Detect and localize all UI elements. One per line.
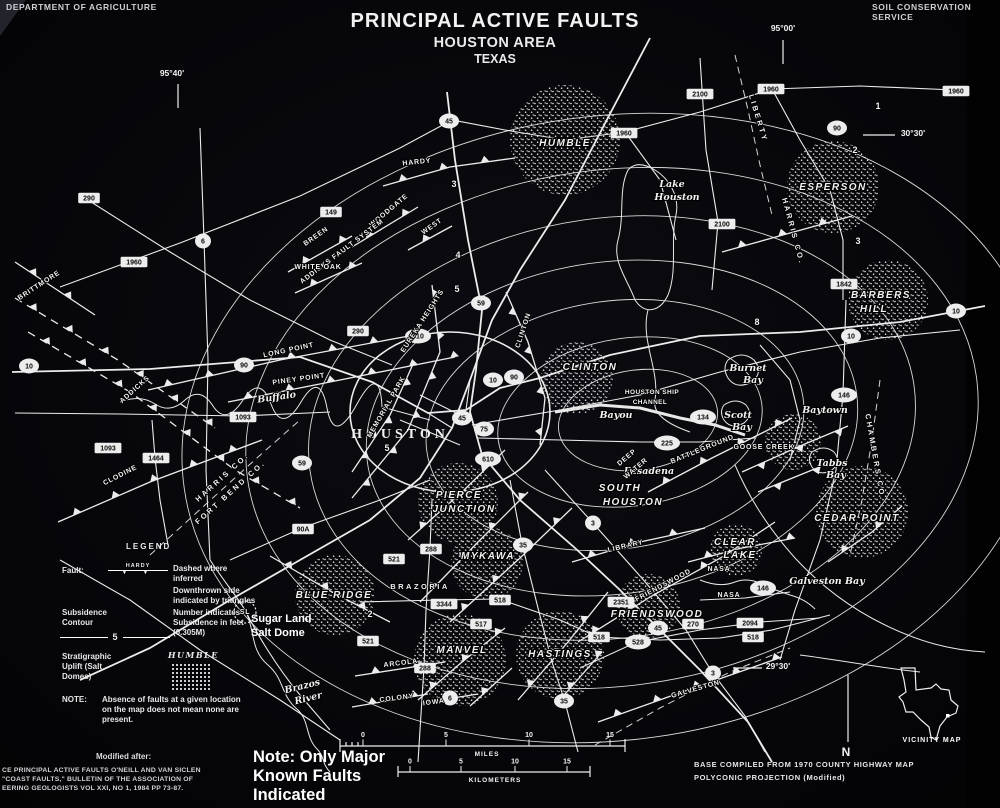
map-label-mykawa: MYKAWA <box>461 551 515 562</box>
map-label-29-30: 29°30' <box>766 661 790 671</box>
subsidence-symbol: 5 <box>60 632 170 643</box>
subsidence-line-left <box>60 637 108 638</box>
km-tick-label-5: 5 <box>459 759 463 766</box>
miles-tick-label-10: 10 <box>525 732 533 739</box>
shield-number-10: 10 <box>25 364 33 371</box>
shield-number-288: 288 <box>419 666 431 673</box>
fault-symbol-name: HARDY <box>108 563 168 570</box>
shield-number-146: 146 <box>757 586 769 593</box>
scan-edge-strip <box>966 0 1000 808</box>
shield-number-134: 134 <box>697 415 709 422</box>
legend-strat-example: HUMBLE <box>168 650 219 660</box>
shield-number-45: 45 <box>458 416 466 423</box>
map-label-manvel: MANVEL <box>436 645 487 656</box>
map-label-nasa: NASA <box>717 592 740 599</box>
contour-number-5: 5 <box>454 284 459 294</box>
shield-number-518: 518 <box>593 635 605 642</box>
header-service: SOIL CONSERVATION SERVICE <box>872 2 1000 22</box>
shield-number-1960: 1960 <box>948 89 964 96</box>
map-label-houston: HOUSTON <box>351 427 449 442</box>
map-label-blue-ridge: BLUE RIDGE <box>296 590 373 601</box>
map-label-bayou: Bayou <box>599 410 633 421</box>
legend-strat-label: Stratigraphic Uplift (Salt Domes) <box>62 652 132 682</box>
shield-number-3344: 3344 <box>436 602 452 609</box>
map-label-30-30: 30°30' <box>901 128 925 138</box>
shield-number-521: 521 <box>388 557 400 564</box>
map-label-south: SOUTH <box>599 483 642 494</box>
scale-miles-label: MILES <box>475 751 500 758</box>
base-credit-block: BASE COMPILED FROM 1970 COUNTY HIGHWAY M… <box>694 759 914 785</box>
shield-number-1960: 1960 <box>763 87 779 94</box>
sugar-land-annotation: Sugar Land Salt Dome <box>251 613 323 641</box>
shield-number-10: 10 <box>489 378 497 385</box>
shield-number-6: 6 <box>201 239 205 246</box>
map-label-95-00: 95°00' <box>771 23 795 33</box>
legend-subsidence-desc: Number indicates Subsidence in feet (0.3… <box>173 608 261 638</box>
salt-dome-clinton <box>541 342 613 414</box>
miles-tick-label-0: 0 <box>361 732 365 739</box>
legend-subsidence-label: Subsidence Contour <box>62 608 120 628</box>
legend-fault-desc2: Downthrown side indicated by triangles <box>173 586 261 606</box>
legend-note-text: Absence of faults at a given location on… <box>102 695 252 725</box>
shield-number-75: 75 <box>480 427 488 434</box>
shield-number-90: 90 <box>510 375 518 382</box>
map-label-bay: Bay <box>731 422 753 433</box>
legend-note-label: NOTE: <box>62 695 87 705</box>
shield-number-288: 288 <box>425 547 437 554</box>
shield-number-1093: 1093 <box>235 415 251 422</box>
miles-tick-label-15: 15 <box>606 732 614 739</box>
shield-number-521: 521 <box>362 639 374 646</box>
shield-number-610: 610 <box>482 457 494 464</box>
contour-number-5: 5 <box>384 443 389 453</box>
shield-number-45: 45 <box>445 119 453 126</box>
shield-number-2094: 2094 <box>742 621 758 628</box>
map-label-pierce: PIERCE <box>436 490 482 501</box>
map-label-friendswood: FRIENDSWOOD <box>611 609 704 620</box>
shield-number-45: 45 <box>654 626 662 633</box>
map-label-clear: CLEAR <box>714 537 756 548</box>
miles-tick-label-5: 5 <box>444 732 448 739</box>
map-subtitle-state: TEXAS <box>330 52 660 68</box>
legend-fault-label: Fault: <box>62 566 84 576</box>
header-department: DEPARTMENT OF AGRICULTURE <box>6 2 157 12</box>
shield-number-528: 528 <box>632 640 644 647</box>
modified-after-label: Modified after: <box>96 752 151 761</box>
fault-symbol: HARDY ▼▼ <box>108 563 168 576</box>
map-label-hill: HILL <box>860 304 888 315</box>
base-credit-line-1: BASE COMPILED FROM 1970 COUNTY HIGHWAY M… <box>694 759 914 772</box>
citation-line-3: EERING GEOLOGISTS VOL XXI, NO 1, 1984 PP… <box>2 784 201 793</box>
salt-dome-goose-creek <box>765 414 821 470</box>
legend-fault-desc1: Dashed where inferred <box>173 564 253 584</box>
map-label-hastings: HASTINGS <box>528 649 592 660</box>
map-label-95-40: 95°40' <box>160 68 184 78</box>
contour-number-3: 3 <box>855 236 860 246</box>
shield-number-59: 59 <box>477 301 485 308</box>
houston-location-dot <box>946 714 950 718</box>
citation-line-1: CE PRINCIPAL ACTIVE FAULTS O'NEILL AND V… <box>2 766 201 775</box>
shield-number-1960: 1960 <box>126 260 142 267</box>
km-tick-label-15: 15 <box>563 759 571 766</box>
shield-number-517: 517 <box>475 622 487 629</box>
shield-number-1464: 1464 <box>148 456 164 463</box>
map-label-junction: JUNCTION <box>432 504 495 515</box>
stipple-sample <box>171 663 211 690</box>
shield-number-1960: 1960 <box>616 131 632 138</box>
map-label-baytown: Baytown <box>801 405 848 416</box>
shield-number-3: 3 <box>591 521 595 528</box>
subsidence-line-right <box>123 637 171 638</box>
contour-number-3: 3 <box>451 179 456 189</box>
map-label-brazoria: BRAZORIA <box>390 582 450 591</box>
fault-symbol-line: ▼▼ <box>108 570 168 576</box>
citation-line-2: "COAST FAULTS," BULLETIN OF THE ASSOCIAT… <box>2 775 201 784</box>
map-label-houston: Houston <box>653 192 699 203</box>
map-label-barbers: BARBERS <box>851 290 911 301</box>
contour-number-8: 8 <box>754 317 759 327</box>
shield-number-90a: 90A <box>297 527 310 534</box>
shield-number-290: 290 <box>83 196 95 203</box>
map-title: PRINCIPAL ACTIVE FAULTS <box>330 9 660 34</box>
major-faults-note: Note: Only Major Known Faults Indicated <box>253 748 405 805</box>
shield-number-90: 90 <box>833 126 841 133</box>
map-label-lake: LAKE <box>723 550 756 561</box>
shield-number-2100: 2100 <box>714 222 730 229</box>
shield-number-90: 90 <box>240 363 248 370</box>
shield-number-1842: 1842 <box>836 282 852 289</box>
map-label-houston-ship: HOUSTON SHIP <box>625 389 679 396</box>
shield-number-518: 518 <box>747 635 759 642</box>
shield-number-10: 10 <box>952 309 960 316</box>
legend-title: LEGEND <box>126 542 171 552</box>
map-title-block: PRINCIPAL ACTIVE FAULTS HOUSTON AREA TEX… <box>330 9 660 68</box>
map-label-clinton: CLINTON <box>563 362 618 373</box>
map-label-white-oak: WHITE OAK <box>294 264 341 271</box>
shield-number-59: 59 <box>298 461 306 468</box>
shield-number-518: 518 <box>494 598 506 605</box>
shield-number-146: 146 <box>838 393 850 400</box>
shield-number-10: 10 <box>847 334 855 341</box>
citation-block: CE PRINCIPAL ACTIVE FAULTS O'NEILL AND V… <box>2 766 201 794</box>
shield-number-149: 149 <box>325 210 337 217</box>
map-label-humble: HUMBLE <box>539 138 591 149</box>
map-label-nasa: NASA <box>707 566 730 573</box>
map-subtitle-area: HOUSTON AREA <box>330 34 660 52</box>
vicinity-map-label: VICINITY MAP <box>894 737 970 744</box>
map-label-cedar-point: CEDAR POINT <box>814 513 899 524</box>
shield-number-3: 3 <box>711 671 715 678</box>
map-label-bay: Bay <box>825 470 847 481</box>
contour-number-4: 4 <box>455 250 460 260</box>
north-label: N <box>842 745 851 759</box>
map-label-tabbs: Tabbs <box>817 458 849 469</box>
map-label-lake: Lake <box>658 179 684 190</box>
shield-number-225: 225 <box>661 441 673 448</box>
contour-number-1: 1 <box>875 101 880 111</box>
shield-number-2100: 2100 <box>692 92 708 99</box>
map-label-scott: Scott <box>724 410 752 421</box>
contour-number-2: 2 <box>852 145 857 155</box>
scale-km-label: KILOMETERS <box>469 777 522 784</box>
km-tick-label-0: 0 <box>408 759 412 766</box>
base-credit-line-2: POLYCONIC PROJECTION (Modified) <box>694 772 914 785</box>
map-page: 1960290149451960210019601960902100184261… <box>0 0 1000 808</box>
shield-number-2351: 2351 <box>613 600 629 607</box>
shield-number-270: 270 <box>687 622 699 629</box>
shield-number-1093: 1093 <box>100 446 116 453</box>
map-label-houston: HOUSTON <box>603 497 663 508</box>
shield-number-35: 35 <box>519 543 527 550</box>
km-tick-label-10: 10 <box>511 759 519 766</box>
map-label-esperson: ESPERSON <box>799 182 867 193</box>
map-label-goose-creek: GOOSE CREEK <box>734 444 795 451</box>
map-label-bay: Bay <box>742 375 764 386</box>
contour-number-2: 2 <box>367 609 372 619</box>
shield-number-35: 35 <box>560 699 568 706</box>
map-label-channel: CHANNEL <box>633 399 668 406</box>
legend: LEGEND Fault: HARDY ▼▼ Dashed where infe… <box>58 542 268 742</box>
map-label-burnet: Burnet <box>728 363 767 374</box>
subsidence-value: 5 <box>108 632 123 643</box>
shield-number-6: 6 <box>448 696 452 703</box>
map-label-galveston-bay: Galveston Bay <box>789 576 866 587</box>
shield-number-290: 290 <box>352 329 364 336</box>
